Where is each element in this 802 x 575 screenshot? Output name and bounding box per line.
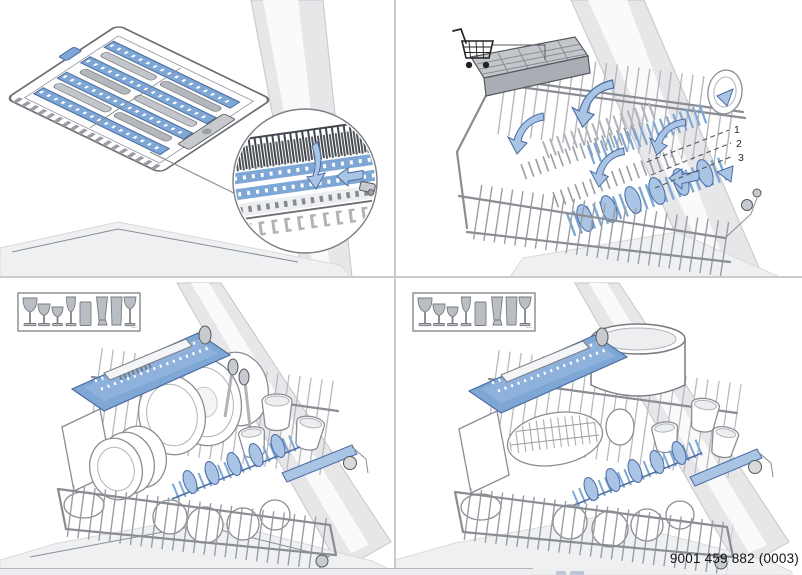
callout-line [150,152,246,199]
rail-roller [749,461,762,474]
panel-divider-horizontal [0,276,802,278]
cutlery-drawer [0,22,272,173]
panel-cutlery-drawer-detail [0,0,395,277]
rack-wheel [316,555,328,567]
legend-more-label: ... [526,323,532,330]
glass-size-legend: ... [18,293,140,331]
serving-spoon [228,359,238,375]
rail-roller [344,457,357,470]
rack-roller [742,200,753,211]
baking-sheet [459,411,509,493]
bowl [592,511,628,547]
bowl [260,500,290,530]
tumbler-icon [80,302,91,326]
panel-loaded-rack-plates: ... [0,277,395,575]
bowl [553,505,587,539]
accessory-basket [471,37,590,96]
panel-divider-vertical [394,0,396,568]
panel-loaded-rack-pots: ... [395,277,802,575]
shopping-cart-icon [453,29,493,68]
jug [606,409,634,445]
legend-more-label: ... [131,323,137,330]
level-label: 2 [736,138,742,150]
next-page-peek [570,571,584,575]
longdrink-glass-icon [506,297,517,325]
manual-page: 1 2 3 [0,0,802,575]
part-number: 9001 459 882 (0003) [670,551,799,566]
level-label: 3 [738,152,744,164]
serving-spoon [239,369,249,385]
next-page-peek [556,571,566,575]
detail-callout-circle [226,109,383,253]
page-edge-bar [0,568,533,575]
longdrink-glass-icon [111,297,122,325]
tumbler-icon [475,302,486,326]
panel-rack-fold-levels: 1 2 3 [395,0,802,277]
level-label: 1 [734,124,740,136]
glass-size-legend: ... [413,293,535,331]
